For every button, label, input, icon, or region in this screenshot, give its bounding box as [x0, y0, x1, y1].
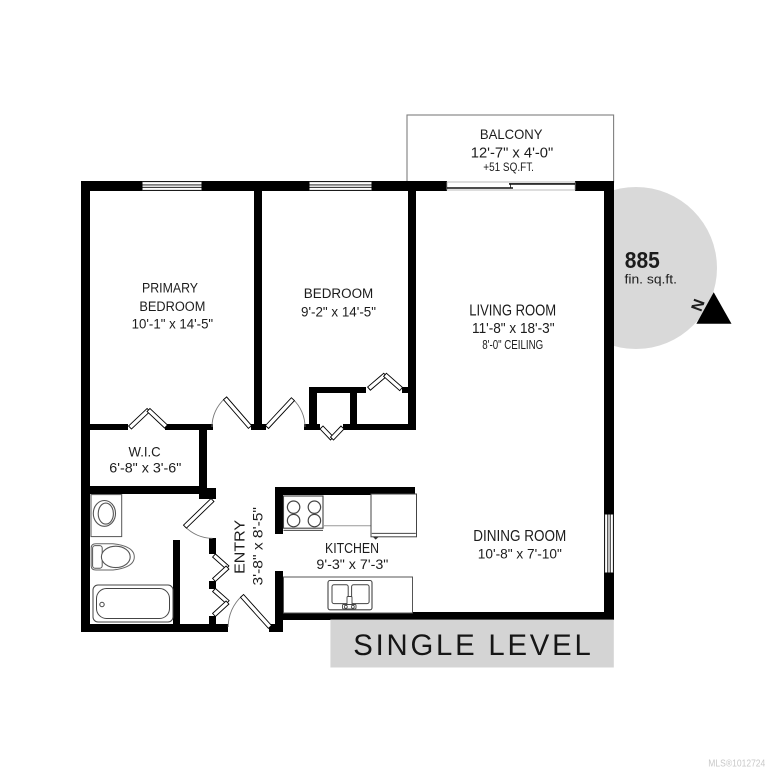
svg-text:9'-3" x 7'-3": 9'-3" x 7'-3"	[316, 556, 388, 572]
svg-text:BALCONY: BALCONY	[480, 126, 543, 142]
svg-text:3'-8" x 8'-5": 3'-8" x 8'-5"	[249, 507, 265, 586]
svg-text:SINGLE LEVEL: SINGLE LEVEL	[353, 629, 591, 662]
svg-text:DINING ROOM: DINING ROOM	[473, 528, 566, 545]
svg-text:885: 885	[625, 247, 660, 273]
svg-text:10'-1" x 14'-5": 10'-1" x 14'-5"	[132, 316, 214, 332]
svg-text:W.I.C: W.I.C	[129, 444, 161, 460]
svg-text:BEDROOM: BEDROOM	[304, 286, 374, 301]
svg-text:fin. sq.ft.: fin. sq.ft.	[625, 271, 678, 286]
svg-text:ENTRY: ENTRY	[232, 520, 248, 574]
svg-text:KITCHEN: KITCHEN	[325, 540, 379, 557]
svg-text:+51 SQ.FT.: +51 SQ.FT.	[483, 162, 534, 174]
svg-text:BEDROOM: BEDROOM	[139, 299, 205, 314]
svg-text:8'-0" CEILING: 8'-0" CEILING	[482, 338, 543, 352]
svg-text:10'-8" x 7'-10": 10'-8" x 7'-10"	[478, 545, 562, 561]
svg-text:9'-2" x 14'-5": 9'-2" x 14'-5"	[301, 304, 376, 320]
svg-text:PRIMARY: PRIMARY	[142, 281, 198, 296]
svg-text:LIVING ROOM: LIVING ROOM	[469, 302, 556, 319]
svg-text:MLS®1012724: MLS®1012724	[708, 757, 765, 768]
svg-text:11'-8" x 18'-3": 11'-8" x 18'-3"	[472, 321, 555, 337]
svg-text:6'-8" x 3'-6": 6'-8" x 3'-6"	[109, 459, 181, 475]
svg-text:12'-7" x 4'-0": 12'-7" x 4'-0"	[471, 145, 554, 161]
